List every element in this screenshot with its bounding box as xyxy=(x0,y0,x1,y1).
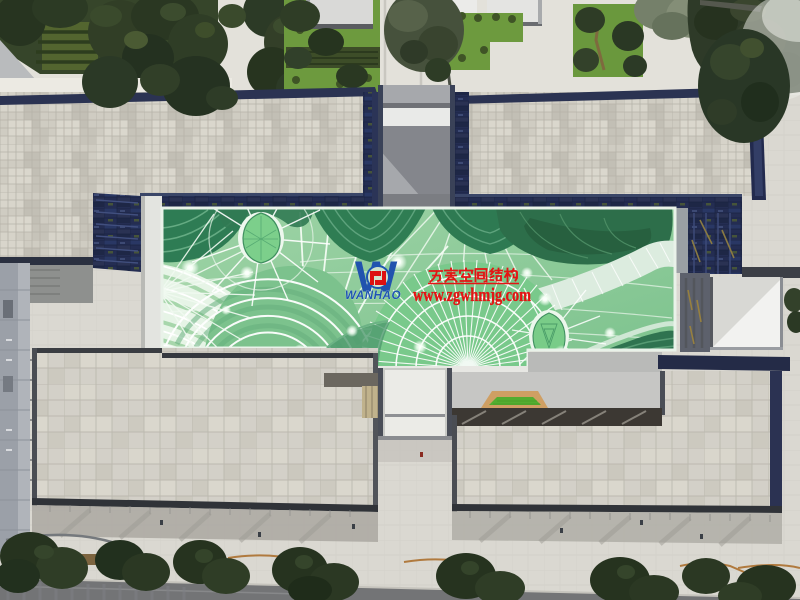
svg-text:www.zgwhmjg.com: www.zgwhmjg.com xyxy=(413,286,531,306)
svg-text:WANHAO: WANHAO xyxy=(345,290,401,302)
